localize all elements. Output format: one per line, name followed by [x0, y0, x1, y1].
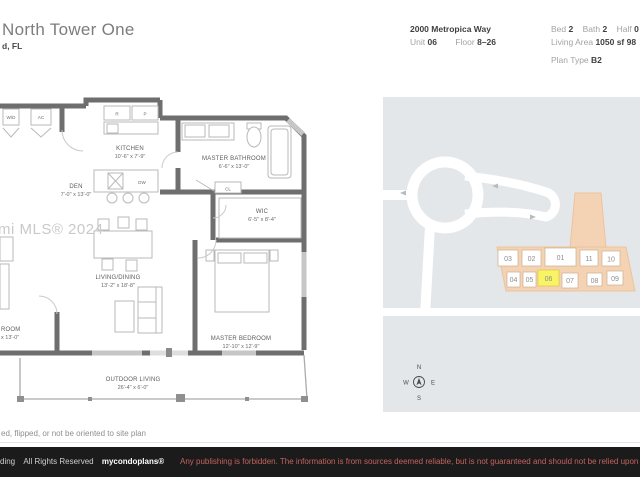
- plan-type-value: B2: [591, 55, 602, 65]
- page-title: North Tower One: [2, 20, 135, 40]
- unit-number-04: 04: [510, 277, 518, 284]
- pillow: [244, 253, 267, 263]
- road-horizontal: [383, 308, 640, 316]
- room-label-master-bedroom: MASTER BEDROOM: [211, 336, 271, 342]
- chair: [126, 260, 137, 271]
- room-dims-living-dining: 13'-2" x 18'-8": [101, 283, 135, 289]
- unit-number-09: 09: [611, 276, 619, 283]
- tv-console: [0, 237, 13, 261]
- cooktop: [107, 124, 118, 133]
- nightstand: [270, 250, 278, 261]
- unit-number-08: 08: [591, 278, 599, 285]
- coffee-table: [115, 301, 134, 332]
- room-dims-master-bedroom: 12'-10" x 12'-9": [223, 344, 260, 350]
- unit-number-10: 10: [607, 257, 615, 264]
- half-value: 0: [634, 24, 639, 34]
- balcony-door-post: [166, 348, 172, 357]
- balcony-rail: [20, 355, 307, 399]
- unit-floor-line: Unit 06 Floor 8–26: [410, 37, 496, 47]
- label-closet: CL: [225, 187, 231, 192]
- unit-number-07: 07: [566, 278, 574, 285]
- living-area-value: 1050 sf 98: [595, 37, 636, 47]
- compass-east: E: [431, 381, 435, 387]
- room-dims-master-bathroom: 6'-6" x 13'-0": [219, 164, 250, 170]
- label-ac: AC: [38, 115, 45, 120]
- orientation-disclaimer: ed, flipped, or not be oriented to site …: [1, 429, 146, 438]
- site-plan-map: 03 02 01 11 10 04 05 06 07 08 09 N S W E: [383, 97, 640, 412]
- stool: [123, 193, 133, 203]
- unit-value: 06: [428, 37, 437, 47]
- sofa: [138, 287, 162, 333]
- label-washer-dryer: W/D: [7, 115, 17, 120]
- bed-bath-line: Bed 2 Bath 2 Half 0: [551, 24, 639, 34]
- floor-plan-page: North Tower One d, FL 2000 Metropica Way…: [0, 0, 640, 480]
- plan-type-label: Plan Type: [551, 55, 589, 65]
- mls-watermark: mi MLS® 2024: [0, 221, 103, 238]
- sink: [209, 125, 229, 137]
- floor-value: 8–26: [477, 37, 496, 47]
- unit-number-01: 01: [557, 255, 565, 262]
- road-south: [425, 226, 430, 315]
- unit-number-03: 03: [504, 256, 512, 263]
- bed-value: 2: [569, 24, 574, 34]
- footer-warning: Any publishing is forbidden. The informa…: [180, 447, 640, 477]
- room-dims-wic: 6'-5" x 8'-4": [248, 217, 276, 223]
- floor-label: Floor: [455, 37, 474, 47]
- chair: [102, 259, 113, 270]
- living-area-label: Living Area: [551, 37, 593, 47]
- room-label-den: DEN: [69, 184, 82, 190]
- room-label-bedroom-cut: ROOM: [1, 327, 20, 333]
- room-dims-den: 7'-0" x 13'-0": [61, 192, 92, 198]
- footer-rights: All Rights Reserved: [23, 457, 93, 466]
- unit-number-11: 11: [585, 256, 592, 263]
- building-wing: [570, 193, 606, 248]
- floor-plan-drawing: mi MLS® 2024 DEN 7'-0" x 13'-0" KITCHEN …: [0, 92, 320, 422]
- footer-bar: ding All Rights Reserved mycondoplans® A…: [0, 447, 640, 477]
- bath-value: 2: [602, 24, 607, 34]
- half-label: Half: [617, 24, 632, 34]
- stool: [107, 193, 117, 203]
- sink: [185, 125, 205, 137]
- label-dishwasher: DW: [138, 180, 146, 185]
- chair: [118, 217, 129, 228]
- footer-divider: [0, 442, 640, 443]
- footer-prefix: ding: [0, 457, 15, 466]
- compass-west: W: [403, 381, 409, 387]
- unit-number-02: 02: [528, 256, 536, 263]
- toilet: [247, 127, 261, 147]
- room-label-outdoor-living: OUTDOOR LIVING: [106, 377, 161, 383]
- chair: [136, 219, 147, 230]
- room-label-living-dining: LIVING/DINING: [96, 275, 141, 281]
- balcony-posts: [17, 394, 308, 402]
- compass-south: S: [417, 396, 421, 402]
- kitchen-island: [94, 170, 158, 192]
- living-area-line: Living Area 1050 sf 98: [551, 37, 636, 47]
- room-label-kitchen: KITCHEN: [116, 146, 144, 152]
- plan-type-line: Plan Type B2: [551, 55, 602, 65]
- unit-label: Unit: [410, 37, 425, 47]
- footer-copyright: ding All Rights Reserved mycondoplans®: [0, 447, 164, 477]
- footer-brand: mycondoplans®: [102, 457, 164, 466]
- bed-label: Bed: [551, 24, 566, 34]
- unit-number-06: 06: [545, 276, 553, 283]
- room-label-wic: WIC: [256, 209, 269, 215]
- stool: [139, 193, 149, 203]
- room-dims-bedroom-cut: x 13'-0": [1, 335, 19, 341]
- address: 2000 Metropica Way: [410, 24, 491, 34]
- bath-label: Bath: [583, 24, 601, 34]
- room-dims-kitchen: 10'-6" x 7'-9": [115, 154, 146, 160]
- pillow: [218, 253, 241, 263]
- compass-north: N: [417, 365, 421, 371]
- media-wall: [0, 264, 9, 309]
- room-label-master-bathroom: MASTER BATHROOM: [202, 156, 266, 162]
- unit-number-05: 05: [526, 277, 534, 284]
- room-dims-outdoor-living: 26'-4" x 6'-0": [118, 385, 149, 391]
- page-subtitle: d, FL: [2, 41, 22, 51]
- label-pantry: P: [143, 112, 146, 117]
- closet-door-chevrons: [3, 128, 51, 137]
